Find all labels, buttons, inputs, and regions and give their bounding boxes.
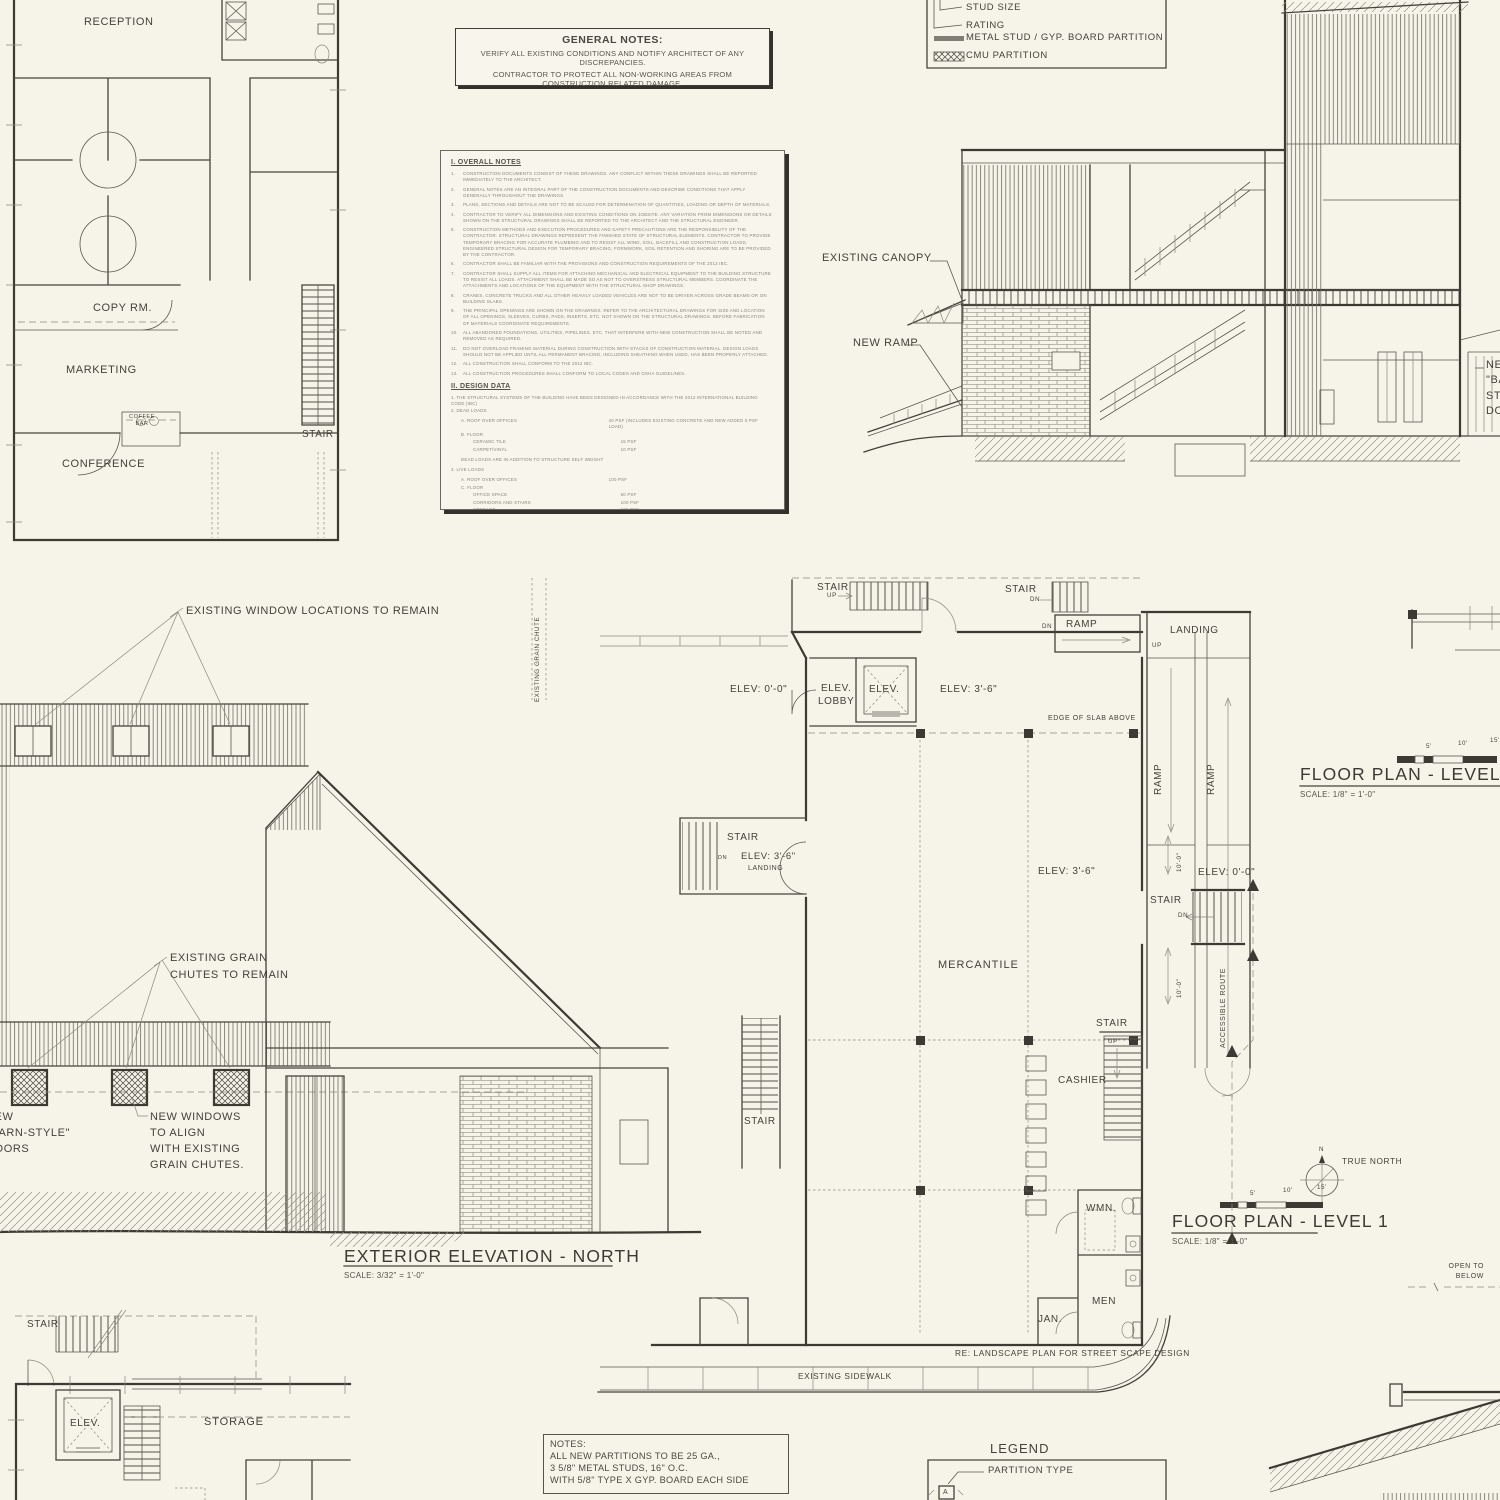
- note-item: 2.GENERAL NOTES ARE AN INTEGRAL PART OF …: [451, 187, 772, 199]
- plan1-stair-label: STAIR: [744, 1116, 776, 1129]
- plan1-sidewalk-label: EXISTING SIDEWALK: [798, 1371, 892, 1381]
- plan1-elev-lobby-label: ELEV. LOBBY: [818, 682, 854, 708]
- storage-label: STORAGE: [204, 1416, 264, 1430]
- room-label-marketing: MARKETING: [66, 364, 137, 378]
- drawing-title-plan2: FLOOR PLAN - LEVEL 2: [1300, 764, 1500, 786]
- plan1-linework: [532, 578, 1259, 1392]
- design-data-row: A. ROOF OVER OFFICES40 PSF (INCLUDES EXI…: [451, 418, 772, 430]
- note-item: 13.ALL CONSTRUCTION PROCEDURES SHALL CON…: [451, 371, 772, 377]
- north-n-label: N: [1319, 1146, 1324, 1154]
- annotation-existing-windows: EXISTING WINDOW LOCATIONS TO REMAIN: [186, 605, 439, 619]
- annotation-new-windows: NEW WINDOWS TO ALIGN WITH EXISTING GRAIN…: [150, 1110, 244, 1174]
- room-label-coffee-bar: COFFEE BAR: [120, 414, 164, 428]
- drawing-scale-plan2: SCALE: 1/8" = 1'-0": [1300, 790, 1375, 800]
- design-data-row: CORRIDORS AND STAIRS100 PSF: [451, 500, 772, 506]
- dd-value: 40 PSF (INCLUDES EXISTING CONCRETE AND N…: [609, 418, 772, 430]
- note-item: 10.ALL ABANDONED FOUNDATIONS, UTILITIES,…: [451, 330, 772, 342]
- storage-stair-label: STAIR: [27, 1319, 59, 1332]
- dd-label: B. FLOOR: [451, 432, 609, 438]
- note-item: 12.ALL CONSTRUCTION SHALL CONFORM TO THE…: [451, 361, 772, 367]
- plan1-up-label: UP: [1108, 1038, 1118, 1046]
- plan1-stair-label: STAIR: [1005, 584, 1037, 597]
- note-text: PLANS, SECTIONS AND DETAILS ARE NOT TO B…: [463, 202, 771, 208]
- dd-label: A. ROOF OVER OFFICES: [451, 418, 609, 430]
- plan1-elev-0-label: ELEV: 0'-0": [1198, 867, 1255, 880]
- scalebar-tick: 15': [1317, 1184, 1327, 1192]
- note-number: 11.: [451, 346, 459, 358]
- plan1-wmn-label: WMN.: [1086, 1203, 1116, 1216]
- plan1-landscape-note: RE: LANDSCAPE PLAN FOR STREET SCAPE DESI…: [955, 1348, 1190, 1358]
- note-text: CONTRACTOR SHALL SUPPLY ALL ITEMS FOR AT…: [463, 271, 772, 289]
- note-text: THE PRINCIPAL OPENINGS ARE SHOWN ON THE …: [463, 308, 772, 326]
- dd-label: 2. DEAD LOADS: [451, 408, 599, 414]
- annotation-barn-doors-left: NEW "BARN-STYLE" DOORS: [0, 1110, 70, 1158]
- legend-metal-partition-label: METAL STUD / GYP. BOARD PARTITION: [966, 32, 1163, 44]
- dd-value: 100 PSF: [609, 477, 772, 483]
- note-number: 10.: [451, 330, 459, 342]
- notes-document: I. OVERALL NOTES 1.CONSTRUCTION DOCUMENT…: [440, 150, 785, 510]
- note-item: 6.CONTRACTOR SHALL BE FAMILIAR WITH THE …: [451, 261, 772, 267]
- note-item: 11.DO NOT OVERLOAD FRAMING MATERIAL DURI…: [451, 346, 772, 358]
- plan1-stair-label: STAIR: [727, 832, 759, 845]
- office-plan-linework: [6, 0, 346, 540]
- note-text: ALL ABANDONED FOUNDATIONS, UTILITIES, PI…: [463, 330, 772, 342]
- storage-plan-linework: [8, 1310, 350, 1500]
- plan1-elev-36-label: ELEV: 3'-6": [940, 684, 997, 697]
- note-text: CONSTRUCTION METHODS AND EXECUTION PROCE…: [463, 227, 772, 258]
- note-item: 9.THE PRINCIPAL OPENINGS ARE SHOWN ON TH…: [451, 308, 772, 326]
- dd-value: 10 PSF: [621, 447, 772, 453]
- dd-label: CORRIDORS AND STAIRS: [451, 500, 621, 506]
- plan1-dn-label: DN: [1178, 912, 1188, 920]
- plan1-edge-of-slab-label: EDGE OF SLAB ABOVE: [1048, 715, 1136, 724]
- general-notes-line1: VERIFY ALL EXISTING CONDITIONS AND NOTIF…: [456, 49, 769, 67]
- drawing-scale-plan1: SCALE: 1/8" = 1'-0": [1172, 1237, 1247, 1247]
- plan1-landing-label: LANDING: [1170, 625, 1219, 638]
- storage-elev-label: ELEV.: [70, 1418, 100, 1431]
- note-item: 1.CONSTRUCTION DOCUMENTS CONSIST OF THES…: [451, 171, 772, 183]
- plan1-elev-label: ELEV.: [869, 684, 899, 697]
- note-text: CONSTRUCTION DOCUMENTS CONSIST OF THESE …: [463, 171, 772, 183]
- scalebar-tick: 15': [1490, 737, 1500, 745]
- plan1-mercantile-label: MERCANTILE: [938, 959, 1019, 973]
- plan1-stair-label: STAIR: [1150, 895, 1182, 908]
- legend-rating-label: RATING: [966, 20, 1005, 32]
- open-to-below-label: OPEN TO BELOW: [1430, 1262, 1484, 1282]
- dd-label: A. ROOF OVER OFFICES: [451, 477, 609, 483]
- annotation-existing-grain-chutes: EXISTING GRAIN CHUTES TO REMAIN: [170, 950, 289, 983]
- dd-label: C. FLOOR: [451, 485, 609, 491]
- design-data-row: STORAGE125 PSF: [451, 507, 772, 510]
- plan1-up-label: UP: [827, 592, 837, 600]
- note-text: ALL CONSTRUCTION PROCEDURES SHALL CONFOR…: [463, 371, 686, 377]
- legend-stud-size-label: STUD SIZE: [966, 2, 1021, 14]
- note-number: 3.: [451, 202, 459, 208]
- plan1-stair-label: STAIR: [1096, 1018, 1128, 1031]
- scalebar-tick: 10': [1283, 1187, 1293, 1195]
- note-number: 9.: [451, 308, 459, 326]
- plan1-elev-36-label: ELEV: 3'-6": [741, 851, 796, 863]
- plan1-ramp-rotated-label: RAMP: [1153, 764, 1166, 795]
- plan1-cashier-label: CASHIER: [1058, 1075, 1107, 1088]
- dd-label: OFFICE SPACE: [451, 492, 621, 498]
- note-number: 13.: [451, 371, 459, 377]
- room-label-reception: RECEPTION: [84, 16, 154, 30]
- design-data-row: C. FLOOR: [451, 485, 772, 491]
- note-number: 1.: [451, 171, 459, 183]
- bottom-right-fragment-linework: [1270, 1384, 1500, 1500]
- true-north-label: TRUE NORTH: [1342, 1156, 1402, 1166]
- dd-label: 3. LIVE LOADS: [451, 467, 599, 473]
- annotation-new-ramp: NEW RAMP: [853, 337, 918, 351]
- note-number: 12.: [451, 361, 459, 367]
- general-notes-box: GENERAL NOTES: VERIFY ALL EXISTING CONDI…: [455, 28, 770, 86]
- plan1-dim-10-label: 10'-0": [1176, 979, 1184, 998]
- dd-value: 125 PSF: [621, 507, 772, 510]
- note-number: 8.: [451, 293, 459, 305]
- note-text: CONTRACTOR SHALL BE FAMILIAR WITH THE PR…: [463, 261, 728, 267]
- room-label-stair: STAIR: [302, 429, 334, 442]
- plan1-dn-label: DN: [1042, 623, 1052, 631]
- note-text: GENERAL NOTES ARE AN INTEGRAL PART OF TH…: [463, 187, 772, 199]
- legend-symbol-a: A: [943, 1489, 948, 1498]
- scalebar-tick: 10': [1458, 740, 1468, 748]
- design-data-row: CARPET/VINYL10 PSF: [451, 447, 772, 453]
- note-item: 8.CRANES, CONCRETE TRUCKS AND ALL OTHER …: [451, 293, 772, 305]
- dd-label: 1. THE STRUCTURAL SYSTEMS OF THE BUILDIN…: [451, 395, 759, 407]
- design-data-row: B. FLOOR: [451, 432, 772, 438]
- plan1-dn-label: DN: [1030, 596, 1040, 604]
- design-data-row: 3. LIVE LOADS: [451, 467, 772, 473]
- design-data-row: OFFICE SPACE50 PSF: [451, 492, 772, 498]
- plan1-up-label: UP: [1152, 642, 1162, 650]
- plan1-men-label: MEN: [1092, 1296, 1116, 1309]
- general-notes-title: GENERAL NOTES:: [456, 34, 769, 46]
- design-data-title: II. DESIGN DATA: [451, 383, 772, 390]
- drawing-title-plan1: FLOOR PLAN - LEVEL 1: [1172, 1211, 1389, 1233]
- dd-label: CARPET/VINYL: [451, 447, 621, 453]
- overall-notes-title: I. OVERALL NOTES: [451, 159, 772, 166]
- design-data-row: CERAMIC TILE15 PSF: [451, 439, 772, 445]
- legend-bottom-title: LEGEND: [990, 1441, 1049, 1457]
- plan1-accessible-route-label: ACCESSIBLE ROUTE: [1220, 968, 1229, 1048]
- plan1-landing-small-label: LANDING: [748, 865, 783, 874]
- note-item: 3.PLANS, SECTIONS AND DETAILS ARE NOT TO…: [451, 202, 772, 208]
- room-label-conference: CONFERENCE: [62, 458, 145, 472]
- note-text: DO NOT OVERLOAD FRAMING MATERIAL DURING …: [463, 346, 772, 358]
- plan1-elev-36-label: ELEV: 3'-6": [1038, 866, 1095, 879]
- dd-label: DEAD LOADS ARE IN ADDITION TO STRUCTURE …: [451, 457, 769, 463]
- plan1-elev-0-label: ELEV: 0'-0": [730, 684, 787, 697]
- dd-value: 50 PSF: [621, 492, 772, 498]
- annotation-existing-canopy: EXISTING CANOPY: [822, 252, 932, 266]
- plan1-dim-10-label: 10'-0": [1176, 853, 1184, 872]
- plan1-ramp-rotated-label: RAMP: [1206, 764, 1219, 795]
- partition-notes-box: NOTES: ALL NEW PARTITIONS TO BE 25 GA., …: [543, 1434, 789, 1494]
- note-item: 5.CONSTRUCTION METHODS AND EXECUTION PRO…: [451, 227, 772, 258]
- note-text: CONTRACTOR TO VERIFY ALL DIMENSIONS AND …: [463, 212, 772, 224]
- elevation-linework: [0, 608, 700, 1266]
- plan1-dn-label: DN: [718, 855, 727, 862]
- dd-value: 100 PSF: [621, 500, 772, 506]
- note-number: 5.: [451, 227, 459, 258]
- dd-label: CERAMIC TILE: [451, 439, 621, 445]
- scalebar-tick: 5': [1250, 1190, 1256, 1198]
- legend-cmu-partition-label: CMU PARTITION: [966, 50, 1048, 62]
- note-text: ALL CONSTRUCTION SHALL CONFORM TO THE 20…: [463, 361, 593, 367]
- plan1-jan-label: JAN.: [1038, 1314, 1062, 1327]
- plan1-grain-chute-label: EXISTING GRAIN CHUTE: [534, 617, 542, 702]
- note-text: CRANES, CONCRETE TRUCKS AND ALL OTHER HE…: [463, 293, 772, 305]
- scalebar-tick: 5': [1426, 743, 1432, 751]
- note-number: 6.: [451, 261, 459, 267]
- note-number: 7.: [451, 271, 459, 289]
- dd-label: STORAGE: [451, 507, 621, 510]
- legend-partition-type-label: PARTITION TYPE: [988, 1465, 1073, 1477]
- note-item: 4.CONTRACTOR TO VERIFY ALL DIMENSIONS AN…: [451, 212, 772, 224]
- design-data-row: 2. DEAD LOADS: [451, 408, 772, 414]
- note-number: 4.: [451, 212, 459, 224]
- note-number: 2.: [451, 187, 459, 199]
- annotation-barn-doors-right: NEW "BARN-STYLE" DOORS: [1486, 358, 1500, 420]
- design-data-row: DEAD LOADS ARE IN ADDITION TO STRUCTURE …: [451, 457, 772, 463]
- building-section-linework: [864, 0, 1500, 476]
- general-notes-line2: CONTRACTOR TO PROTECT ALL NON-WORKING AR…: [456, 70, 769, 88]
- dd-value: 15 PSF: [621, 439, 772, 445]
- design-data-row: 1. THE STRUCTURAL SYSTEMS OF THE BUILDIN…: [451, 395, 772, 407]
- drawing-scale-exterior-elevation: SCALE: 3/32" = 1'-0": [344, 1271, 424, 1281]
- room-label-copy-room: COPY RM.: [93, 302, 152, 316]
- note-item: 7.CONTRACTOR SHALL SUPPLY ALL ITEMS FOR …: [451, 271, 772, 289]
- level2-fragment-linework: [1172, 606, 1500, 1291]
- plan1-ramp-label: RAMP: [1066, 619, 1097, 632]
- design-data-row: A. ROOF OVER OFFICES100 PSF: [451, 477, 772, 483]
- blueprint-sheet: RECEPTION COPY RM. MARKETING COFFEE BAR …: [0, 0, 1500, 1500]
- drawing-title-exterior-elevation: EXTERIOR ELEVATION - NORTH: [344, 1246, 640, 1268]
